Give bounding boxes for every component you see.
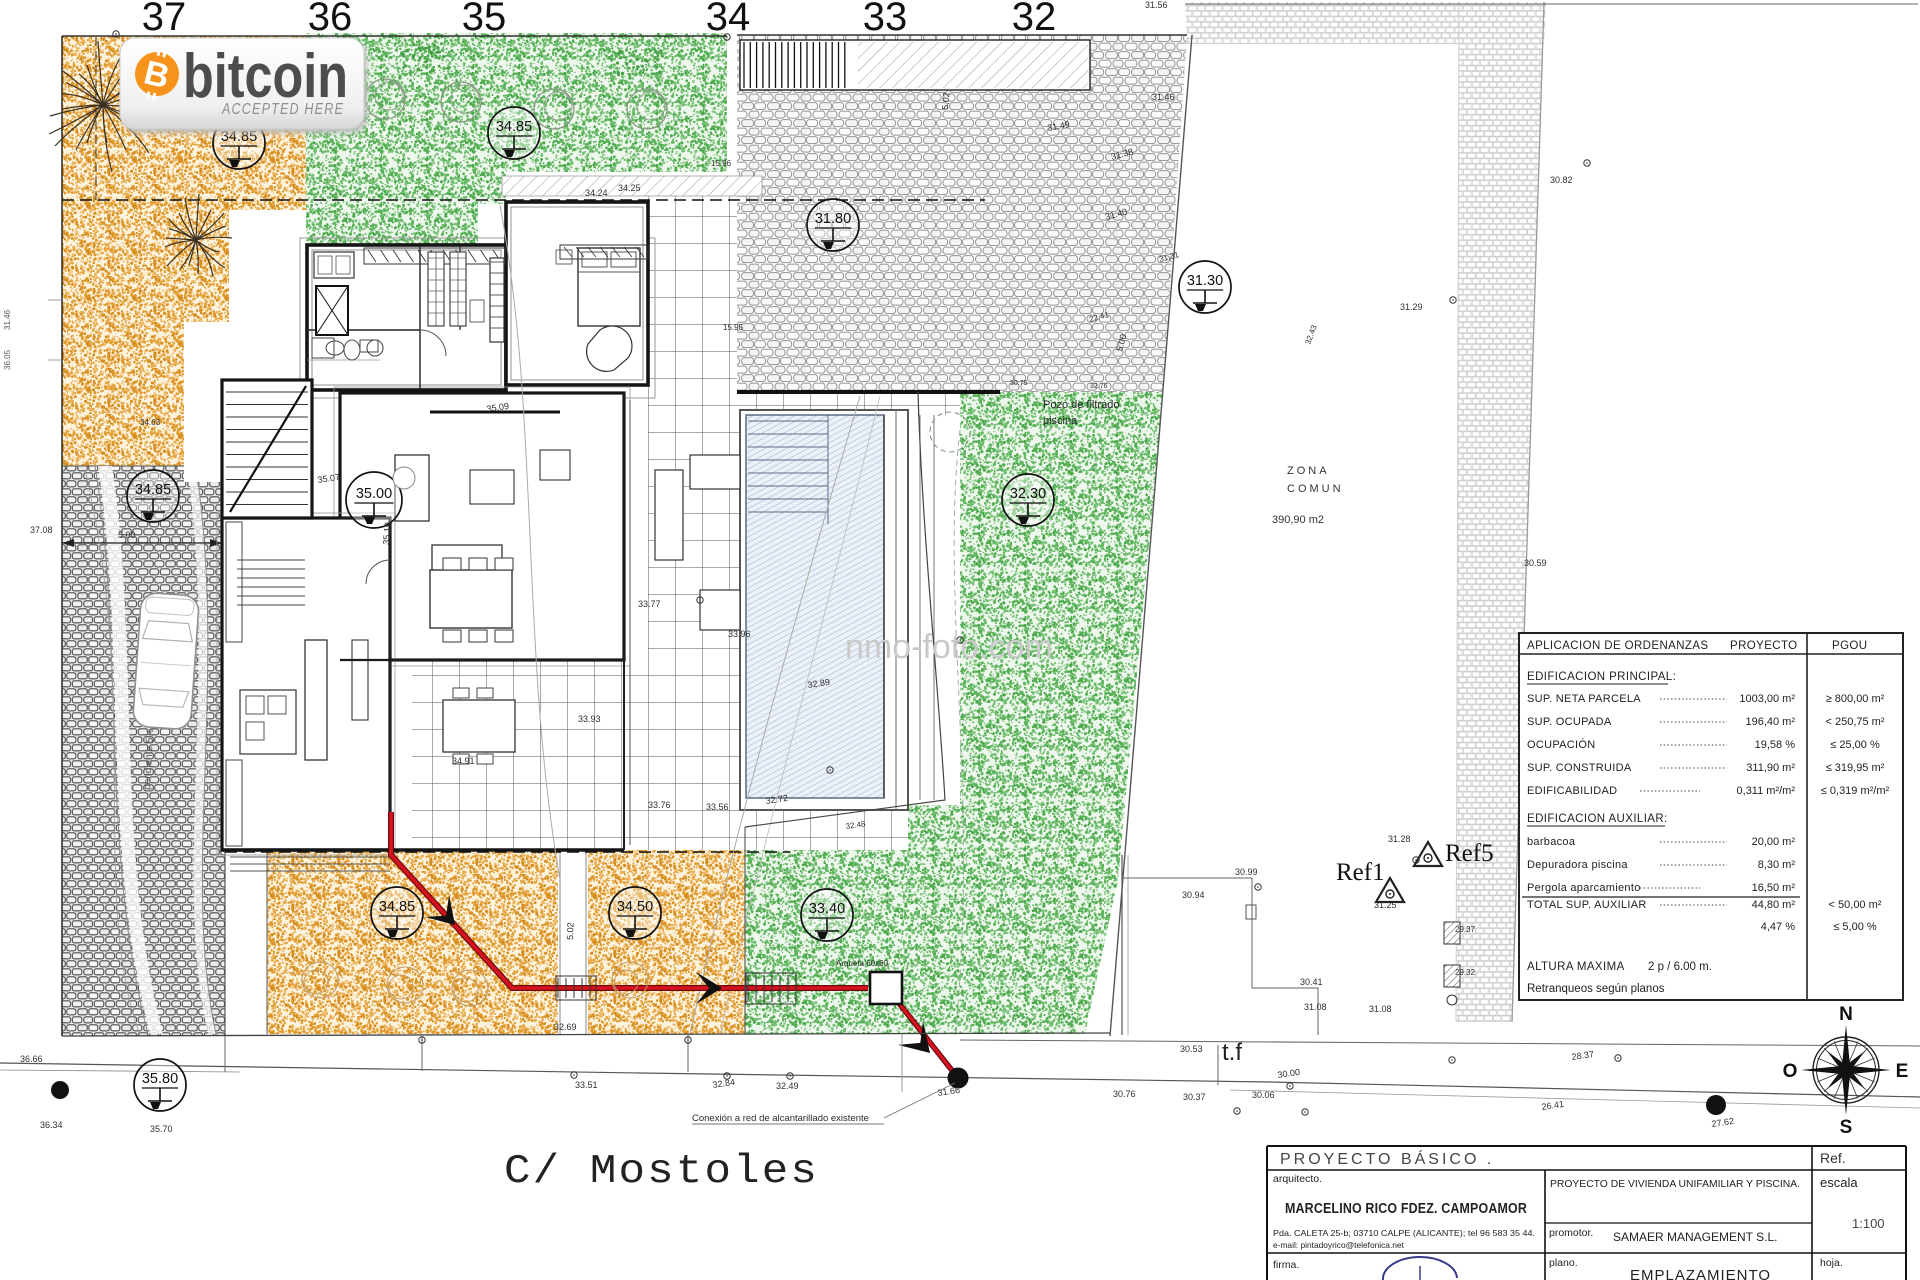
svg-text:4,47 %: 4,47 % [1761,921,1795,933]
svg-text:34.50: 34.50 [617,899,653,915]
svg-text:5,02: 5,02 [940,92,951,110]
svg-text:Arqueta 60x60: Arqueta 60x60 [836,959,889,968]
svg-text:PGOU: PGOU [1832,640,1867,652]
svg-text:29.37: 29.37 [1455,925,1476,934]
svg-text:30.37: 30.37 [1183,1092,1206,1102]
svg-text:30.59: 30.59 [1524,558,1547,568]
svg-text:33.51: 33.51 [575,1080,598,1090]
svg-text:35.19: 35.19 [381,522,393,545]
svg-text:34.63: 34.63 [140,418,161,427]
svg-text:36.66: 36.66 [20,1054,43,1064]
svg-text:≤ 0,319 m²/m²: ≤ 0,319 m²/m² [1821,785,1890,797]
svg-text:44,80 m²: 44,80 m² [1752,899,1796,911]
svg-text:31.08: 31.08 [1304,1002,1327,1012]
svg-text:31.56: 31.56 [1145,0,1168,10]
svg-text:hoja.: hoja. [1820,1257,1843,1269]
svg-text:30.82: 30.82 [1550,175,1573,185]
svg-text:16,50 m²: 16,50 m² [1752,882,1796,894]
svg-text:arquitecto.: arquitecto. [1273,1173,1322,1185]
svg-text:30.06: 30.06 [1252,1090,1275,1100]
svg-text:N: N [1839,1004,1853,1025]
svg-text:33.96: 33.96 [728,629,751,639]
svg-text:36.05: 36.05 [3,349,12,370]
svg-text:37: 37 [142,0,187,39]
svg-text:33.40: 33.40 [809,901,845,917]
svg-text:8,30 m²: 8,30 m² [1758,859,1796,871]
svg-text:5.02: 5.02 [565,922,576,940]
svg-text:311,90 m²: 311,90 m² [1746,762,1795,774]
svg-text:C/ Mostoles: C/ Mostoles [504,1149,819,1195]
svg-text:firma.: firma. [1273,1259,1299,1271]
svg-text:EMPLAZAMIENTO: EMPLAZAMIENTO [1630,1267,1771,1280]
svg-text:33.93: 33.93 [578,714,601,724]
svg-text:EDIFICABILIDAD: EDIFICABILIDAD [1527,785,1617,797]
svg-text:SUP. OCUPADA: SUP. OCUPADA [1527,716,1612,728]
svg-text:SUP. NETA PARCELA: SUP. NETA PARCELA [1527,693,1641,705]
svg-text:2 p / 6.00 m.: 2 p / 6.00 m. [1648,961,1712,973]
svg-text:34.25: 34.25 [618,183,641,193]
svg-text:37.08: 37.08 [30,525,53,535]
svg-text:ACCEPTED HERE: ACCEPTED HERE [221,101,344,118]
svg-text:34.85: 34.85 [135,482,171,498]
svg-text:29.32: 29.32 [1455,968,1476,977]
svg-text:31.80: 31.80 [815,211,851,227]
svg-text:≤ 319,95 m²: ≤ 319,95 m² [1826,762,1885,774]
svg-text:32: 32 [1012,0,1057,39]
svg-text:Pda. CALETA 25-b; 03710 CALPE: Pda. CALETA 25-b; 03710 CALPE (ALICANTE)… [1273,1228,1535,1238]
svg-text:30.76: 30.76 [1113,1089,1136,1099]
svg-text:15.96: 15.96 [711,159,732,168]
svg-text:30.94: 30.94 [1182,890,1205,900]
svg-text:nmo-foto.com: nmo-foto.com [845,628,1053,666]
svg-text:31.08: 31.08 [1369,1004,1392,1014]
svg-text:30.75: 30.75 [1010,380,1028,387]
svg-text:plano.: plano. [1549,1257,1578,1269]
svg-text:Ref.: Ref. [1820,1150,1846,1166]
svg-text:33: 33 [863,0,908,39]
svg-text:31.29: 31.29 [1400,302,1423,312]
svg-text:Ref1: Ref1 [1336,859,1385,886]
svg-text:31.46: 31.46 [1152,92,1175,102]
svg-text:MARCELINO RICO FDEZ. CAMPOAMOR: MARCELINO RICO FDEZ. CAMPOAMOR [1285,1201,1527,1217]
svg-text:SUP. CONSTRUIDA: SUP. CONSTRUIDA [1527,762,1632,774]
svg-text:5.00: 5.00 [118,530,136,540]
svg-text:APLICACION DE ORDENANZAS: APLICACION DE ORDENANZAS [1527,640,1709,652]
svg-text:34.91: 34.91 [452,756,475,766]
svg-text:PROYECTO BÁSICO .: PROYECTO BÁSICO . [1280,1149,1494,1168]
svg-text:promotor.: promotor. [1549,1227,1593,1239]
svg-text:33.56: 33.56 [706,802,729,812]
svg-text:1:100: 1:100 [1852,1216,1885,1231]
svg-text:34.85: 34.85 [496,119,532,135]
svg-text:t.f: t.f [1222,1039,1242,1066]
svg-text:Retranqueos según planos: Retranqueos según planos [1527,983,1665,995]
svg-text:390,90 m2: 390,90 m2 [1272,514,1324,526]
svg-text:≥ 800,00 m²: ≥ 800,00 m² [1826,693,1885,705]
svg-text:barbacoa: barbacoa [1527,836,1576,848]
svg-text:36: 36 [308,0,353,39]
svg-text:35.00: 35.00 [356,486,392,502]
svg-text:31.28: 31.28 [1388,834,1411,844]
svg-text:E: E [1896,1061,1909,1082]
svg-text:196,40 m²: 196,40 m² [1745,716,1795,728]
svg-text:32.30: 32.30 [1010,486,1046,502]
svg-text:COMUN: COMUN [1287,483,1344,495]
svg-text:32.76: 32.76 [1090,383,1108,390]
svg-text:31.46: 31.46 [3,309,12,330]
svg-text:< 250,75 m²: < 250,75 m² [1825,716,1884,728]
svg-text:0,311 m²/m²: 0,311 m²/m² [1737,785,1796,797]
svg-text:≤ 5,00 %: ≤ 5,00 % [1833,921,1877,933]
svg-text:EDIFICACION AUXILIAR:: EDIFICACION AUXILIAR: [1527,813,1668,825]
svg-text:32.69: 32.69 [554,1022,577,1032]
svg-text:30.41: 30.41 [1300,977,1323,987]
svg-text:Depuradora piscina: Depuradora piscina [1527,859,1628,871]
svg-text:15.95: 15.95 [723,323,744,332]
svg-text:35.70: 35.70 [150,1124,173,1134]
svg-text:O: O [1783,1061,1798,1082]
svg-text:EDIFICACION PRINCIPAL:: EDIFICACION PRINCIPAL: [1527,671,1676,683]
svg-text:31.30: 31.30 [1187,273,1223,289]
svg-text:32.49: 32.49 [776,1081,799,1091]
svg-text:TOTAL SUP. AUXILIAR: TOTAL SUP. AUXILIAR [1527,899,1647,911]
svg-text:34.24: 34.24 [585,188,608,198]
svg-text:34.85: 34.85 [379,899,415,915]
svg-text:OCUPACIÓN: OCUPACIÓN [1527,738,1596,751]
svg-text:piscina: piscina [1043,415,1078,427]
svg-text:Pergola aparcamiento: Pergola aparcamiento [1527,882,1641,894]
svg-text:35: 35 [462,0,507,39]
svg-text:33.77: 33.77 [638,599,661,609]
svg-text:Conexión a red de alcantarilla: Conexión a red de alcantarillado existen… [692,1113,869,1124]
svg-text:PROYECTO: PROYECTO [1730,640,1798,652]
svg-text:escala: escala [1820,1175,1858,1190]
svg-text:35.80: 35.80 [142,1071,178,1087]
svg-text:PROYECTO DE VIVIENDA UNIFAMILI: PROYECTO DE VIVIENDA UNIFAMILIAR Y PISCI… [1550,1179,1800,1190]
svg-text:ALTURA MAXIMA: ALTURA MAXIMA [1527,961,1625,973]
svg-text:Pozo de filtrado: Pozo de filtrado [1043,399,1119,411]
svg-text:36.34: 36.34 [40,1120,63,1130]
svg-text:19,58 %: 19,58 % [1755,739,1796,751]
svg-text:33.76: 33.76 [648,800,671,810]
svg-text:30.53: 30.53 [1180,1044,1203,1054]
svg-text:ZONA: ZONA [1287,465,1330,477]
svg-text:SAMAER MANAGEMENT S.L.: SAMAER MANAGEMENT S.L. [1613,1230,1777,1244]
svg-text:≤ 25,00 %: ≤ 25,00 % [1830,739,1880,751]
svg-text:e-mail: pintadoyrico@telefoni: e-mail: pintadoyrico@telefonica.net [1273,1240,1405,1250]
svg-text:30.99: 30.99 [1235,867,1258,877]
svg-text:1003,00 m²: 1003,00 m² [1739,693,1795,705]
svg-text:20,00 m²: 20,00 m² [1752,836,1796,848]
svg-text:Ref5: Ref5 [1445,840,1494,867]
svg-text:S: S [1840,1117,1853,1138]
svg-text:34: 34 [706,0,751,39]
svg-text:< 50,00 m²: < 50,00 m² [1829,899,1882,911]
